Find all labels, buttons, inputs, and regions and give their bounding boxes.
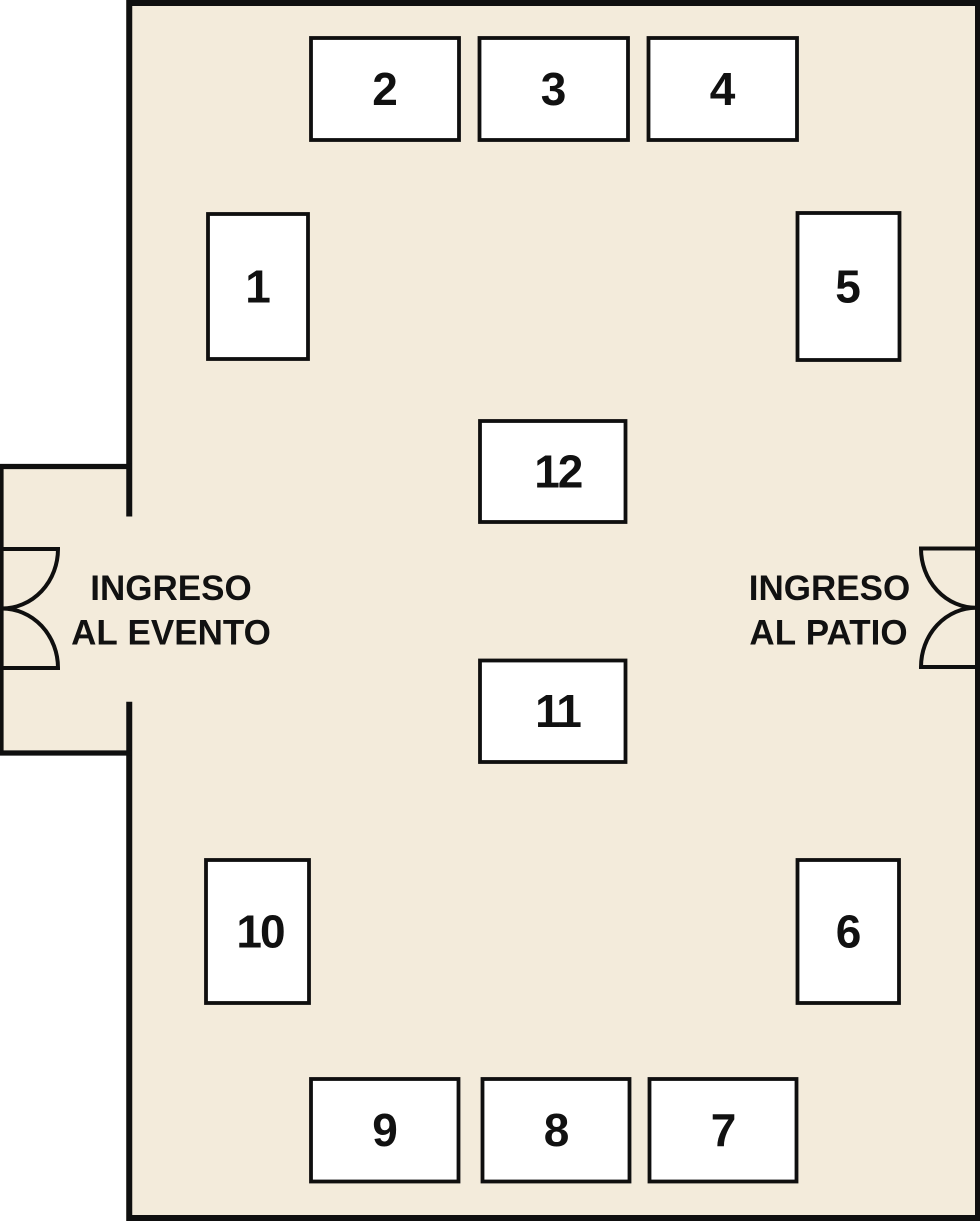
svg-text:8: 8 <box>544 1104 570 1156</box>
svg-text:INGRESO: INGRESO <box>749 569 910 608</box>
svg-text:3: 3 <box>541 63 567 115</box>
svg-text:9: 9 <box>372 1104 398 1156</box>
svg-text:11: 11 <box>535 685 581 737</box>
svg-text:10: 10 <box>236 905 284 957</box>
svg-text:7: 7 <box>711 1104 737 1156</box>
svg-text:AL EVENTO: AL EVENTO <box>71 614 271 653</box>
svg-text:12: 12 <box>534 445 582 497</box>
svg-text:4: 4 <box>710 63 736 115</box>
svg-text:6: 6 <box>836 905 862 957</box>
svg-text:2: 2 <box>372 63 398 115</box>
svg-text:1: 1 <box>245 260 271 312</box>
svg-text:AL PATIO: AL PATIO <box>749 614 907 653</box>
svg-text:INGRESO: INGRESO <box>90 569 251 608</box>
svg-text:5: 5 <box>835 260 861 312</box>
